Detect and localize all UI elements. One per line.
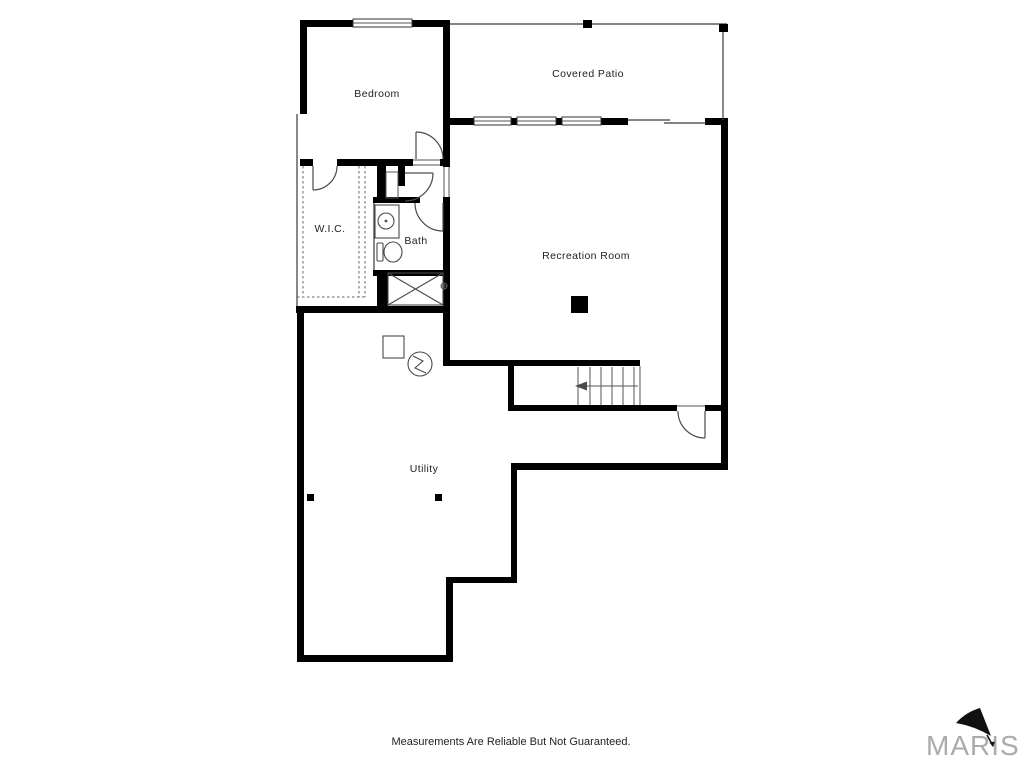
room-labels: Bedroom Covered Patio W.I.C. Bath Recrea… <box>315 68 630 475</box>
hallway-door-arc <box>678 411 705 438</box>
water-heater-icon <box>408 352 432 376</box>
sink-icon <box>375 205 399 238</box>
bedroom-window-icon <box>353 19 412 27</box>
x-hatched-area <box>388 273 448 305</box>
disclaimer-text: Measurements Are Reliable But Not Guaran… <box>391 736 630 748</box>
utility-label: Utility <box>410 463 439 475</box>
toilet-icon <box>377 242 402 262</box>
rec-room-window-icon <box>474 117 601 125</box>
floor-plan-page: Bedroom Covered Patio W.I.C. Bath Recrea… <box>0 0 1024 768</box>
hall-closet <box>386 172 398 198</box>
patio-corner-post <box>719 24 728 32</box>
wic-label: W.I.C. <box>315 223 346 235</box>
maris-logo-text: MARIS <box>926 730 1020 761</box>
stair-direction-arrow <box>575 382 638 391</box>
bedroom-door-arc <box>416 132 443 159</box>
support-column <box>307 494 314 501</box>
patio-post <box>583 20 592 28</box>
wic-door-arc <box>313 166 337 190</box>
sliding-door-icon <box>628 120 706 123</box>
recreation-room-label: Recreation Room <box>542 250 630 262</box>
maris-logo: MARIS <box>926 708 1020 761</box>
staircase <box>575 366 640 405</box>
hall-door-arc <box>405 173 433 201</box>
furnace-icon <box>383 336 404 358</box>
covered-patio-label: Covered Patio <box>552 68 624 80</box>
bedroom-label: Bedroom <box>354 88 399 100</box>
drain-icon <box>441 283 448 290</box>
support-column <box>435 494 442 501</box>
walls <box>296 20 728 662</box>
bath-label: Bath <box>404 235 427 247</box>
rec-room-column <box>571 296 588 313</box>
bath-door-arc <box>415 203 443 231</box>
utility-equipment <box>307 336 442 501</box>
windows <box>353 19 706 125</box>
floor-plan-drawing: Bedroom Covered Patio W.I.C. Bath Recrea… <box>0 0 1024 768</box>
bath-fixtures <box>375 205 402 262</box>
